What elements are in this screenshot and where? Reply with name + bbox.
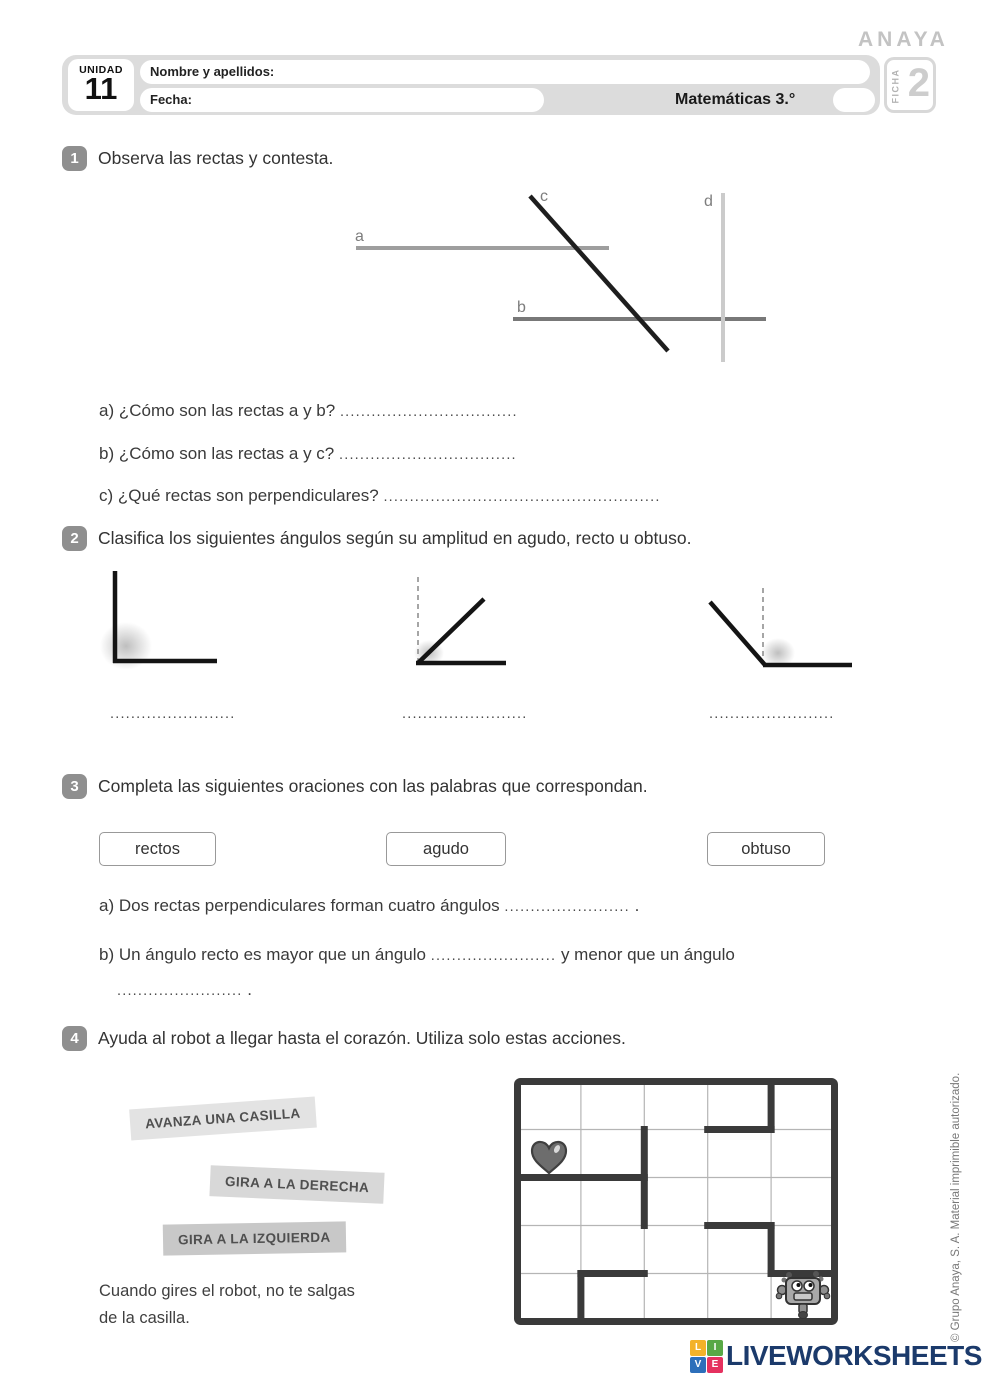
angle-answer-line-3[interactable]: ........................: [709, 706, 835, 722]
unit-badge: UNIDAD 11: [68, 59, 134, 111]
action-card-avanza[interactable]: AVANZA UNA CASILLA: [129, 1097, 316, 1141]
subject-title: Matemáticas 3.°: [675, 91, 795, 109]
question-b-answer-line[interactable]: ..................................: [339, 447, 517, 463]
question-c-answer-line[interactable]: ........................................…: [383, 489, 660, 505]
exercise-2-badge: 2: [62, 526, 87, 551]
question-b: b) ¿Cómo son las rectas a y c? .........…: [99, 444, 517, 464]
heart-icon: [532, 1142, 566, 1173]
line-c: [530, 196, 668, 351]
action-card-gira-izquierda[interactable]: GIRA A LA IZQUIERDA: [163, 1221, 346, 1255]
exercise-1-title: Observa las rectas y contesta.: [98, 148, 333, 169]
sentence-b-text: b) Un ángulo recto es mayor que un ángul…: [99, 945, 426, 964]
sentence-b: b) Un ángulo recto es mayor que un ángul…: [99, 945, 735, 965]
unit-number: 11: [68, 76, 134, 102]
sentence-b-answer-line-1[interactable]: ........................: [431, 948, 557, 964]
question-a: a) ¿Cómo son las rectas a y b? .........…: [99, 401, 518, 421]
exercise-3-badge: 3: [62, 774, 87, 799]
sentence-a-text: a) Dos rectas perpendiculares forman cua…: [99, 896, 500, 915]
liveworksheets-wordmark: LIVEWORKSHEETS: [726, 1340, 982, 1372]
score-box[interactable]: [833, 88, 875, 112]
worksheet-page: ANAYA UNIDAD 11 Nombre y apellidos: Fech…: [0, 0, 1000, 1381]
exercise-4-note: Cuando gires el robot, no te salgas de l…: [99, 1278, 355, 1332]
angle-answer-line-2[interactable]: ........................: [402, 706, 528, 722]
logo-square-l: L: [690, 1340, 706, 1356]
logo-square-e: E: [707, 1357, 723, 1373]
exercise-2-title: Clasifica los siguientes ángulos según s…: [98, 528, 691, 549]
name-field[interactable]: Nombre y apellidos:: [140, 60, 870, 84]
maze: [514, 1078, 838, 1325]
copyright-notice: © Grupo Anaya, S. A. Material imprimible…: [950, 1002, 966, 1342]
date-field-label: Fecha:: [150, 92, 192, 107]
sentence-a-period: .: [635, 896, 640, 915]
angle-answer-line-1[interactable]: ........................: [110, 706, 236, 722]
ficha-number: 2: [908, 61, 930, 106]
logo-square-v: V: [690, 1357, 706, 1373]
sentence-b-period: .: [247, 980, 252, 999]
line-c-label: c: [540, 188, 548, 205]
exercise-4-badge: 4: [62, 1026, 87, 1051]
word-card-obtuso[interactable]: obtuso: [707, 832, 825, 866]
angle-figure-obtuse: [698, 585, 858, 677]
angle-figure-right: [100, 566, 230, 671]
ficha-badge: FICHA 2: [884, 57, 936, 113]
word-card-agudo[interactable]: agudo: [386, 832, 506, 866]
word-card-rectos[interactable]: rectos: [99, 832, 216, 866]
logo-square-i: I: [707, 1340, 723, 1356]
question-c-text: c) ¿Qué rectas son perpendiculares?: [99, 486, 379, 505]
action-card-gira-derecha[interactable]: GIRA A LA DERECHA: [209, 1165, 384, 1204]
question-a-text: a) ¿Cómo son las rectas a y b?: [99, 401, 335, 420]
sentence-b-continuation: ........................ .: [117, 980, 252, 1000]
exercise-1-badge: 1: [62, 146, 87, 171]
date-field[interactable]: Fecha:: [140, 88, 544, 112]
question-a-answer-line[interactable]: ..................................: [340, 404, 518, 420]
line-b-label: b: [517, 299, 526, 316]
note-line-1: Cuando gires el robot, no te salgas: [99, 1282, 355, 1300]
exercise-3-title: Completa las siguientes oraciones con la…: [98, 776, 648, 797]
ficha-label: FICHA: [891, 69, 901, 104]
robot-icon[interactable]: [776, 1271, 830, 1319]
liveworksheets-logo-icon: L I V E: [690, 1340, 723, 1373]
sentence-a: a) Dos rectas perpendiculares forman cua…: [99, 896, 639, 916]
question-b-text: b) ¿Cómo son las rectas a y c?: [99, 444, 334, 463]
exercise-4-title: Ayuda al robot a llegar hasta el corazón…: [98, 1028, 626, 1049]
line-a-label: a: [355, 228, 364, 245]
note-line-2: de la casilla.: [99, 1309, 190, 1327]
sentence-b-text-2: y menor que un ángulo: [561, 945, 735, 964]
sentence-a-answer-line[interactable]: ........................: [504, 899, 630, 915]
name-field-label: Nombre y apellidos:: [150, 64, 274, 79]
line-d-label: d: [704, 193, 713, 210]
sentence-b-answer-line-2[interactable]: ........................: [117, 983, 243, 999]
question-c: c) ¿Qué rectas son perpendiculares? ....…: [99, 486, 661, 506]
angle-figure-acute: [403, 573, 518, 671]
lines-diagram: a b c d: [340, 185, 780, 370]
anaya-logo: ANAYA: [858, 28, 949, 52]
